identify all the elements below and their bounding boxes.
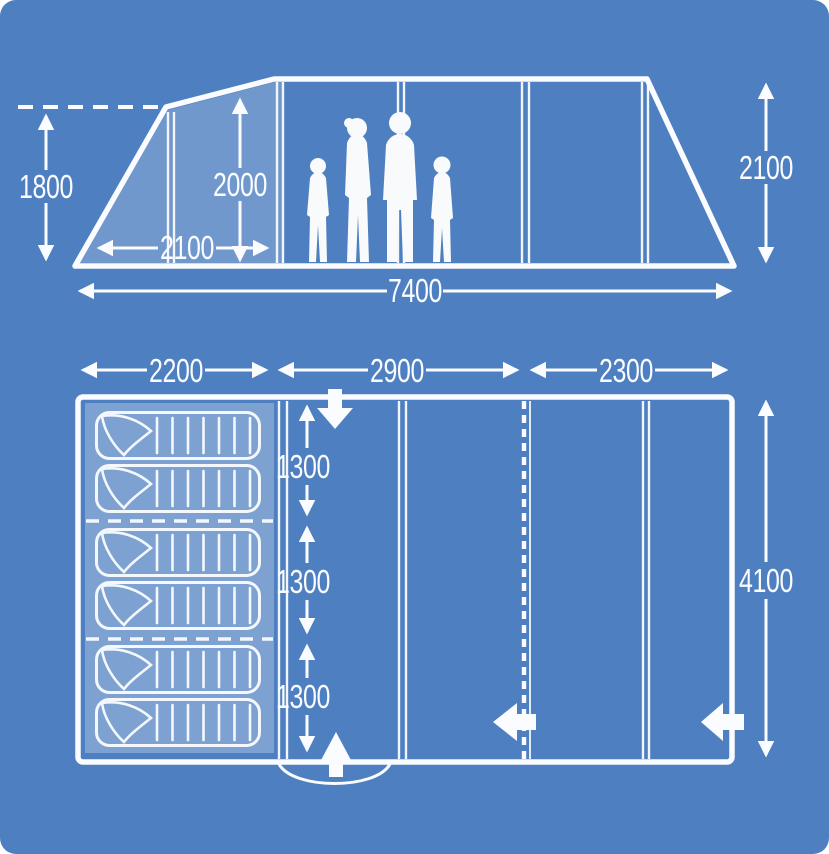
dim-label-2200: 2200: [149, 352, 203, 389]
dim-label-2100-rear: 2100: [739, 149, 793, 186]
dim-label-1300-3: 1300: [276, 678, 330, 715]
dim-berth-depth-2: 1300: [276, 528, 330, 632]
dim-total-length: 7400: [80, 272, 730, 309]
dim-label-1300-2: 1300: [276, 563, 330, 600]
floor-plan-view: 2200 2900 2300 1300: [78, 352, 793, 784]
dim-rear-height: 2100: [739, 85, 793, 261]
side-elevation-view: 1800 2000 2100 7400: [18, 79, 793, 309]
dim-total-depth: 4100: [739, 402, 793, 755]
dim-label-2100-porch: 2100: [160, 229, 214, 266]
dim-label-1800: 1800: [19, 168, 73, 205]
dim-bedroom-width: 2200: [83, 352, 266, 389]
dim-porch-height: 1800: [19, 116, 73, 259]
dim-front-width: 2300: [532, 352, 726, 389]
dim-label-4100: 4100: [739, 562, 793, 599]
diagram-svg: 1800 2000 2100 7400: [0, 0, 829, 854]
dim-berth-depth-3: 1300: [276, 646, 330, 750]
rear-entrance-arrow-up-icon: [320, 732, 352, 777]
dim-label-7400: 7400: [388, 272, 442, 309]
side-door-arrow-left-icon: [701, 703, 744, 741]
dim-label-2000: 2000: [213, 166, 267, 203]
dim-berth-depth-1: 1300: [276, 407, 330, 514]
dim-label-2900: 2900: [370, 352, 424, 389]
dim-label-1300-1: 1300: [276, 448, 330, 485]
dim-label-2300: 2300: [599, 352, 653, 389]
tent-dimension-diagram: 1800 2000 2100 7400: [0, 0, 829, 854]
family-silhouette-icon: [307, 112, 453, 262]
dim-living-width: 2900: [280, 352, 517, 389]
floor-plan-dividers: [279, 401, 649, 759]
